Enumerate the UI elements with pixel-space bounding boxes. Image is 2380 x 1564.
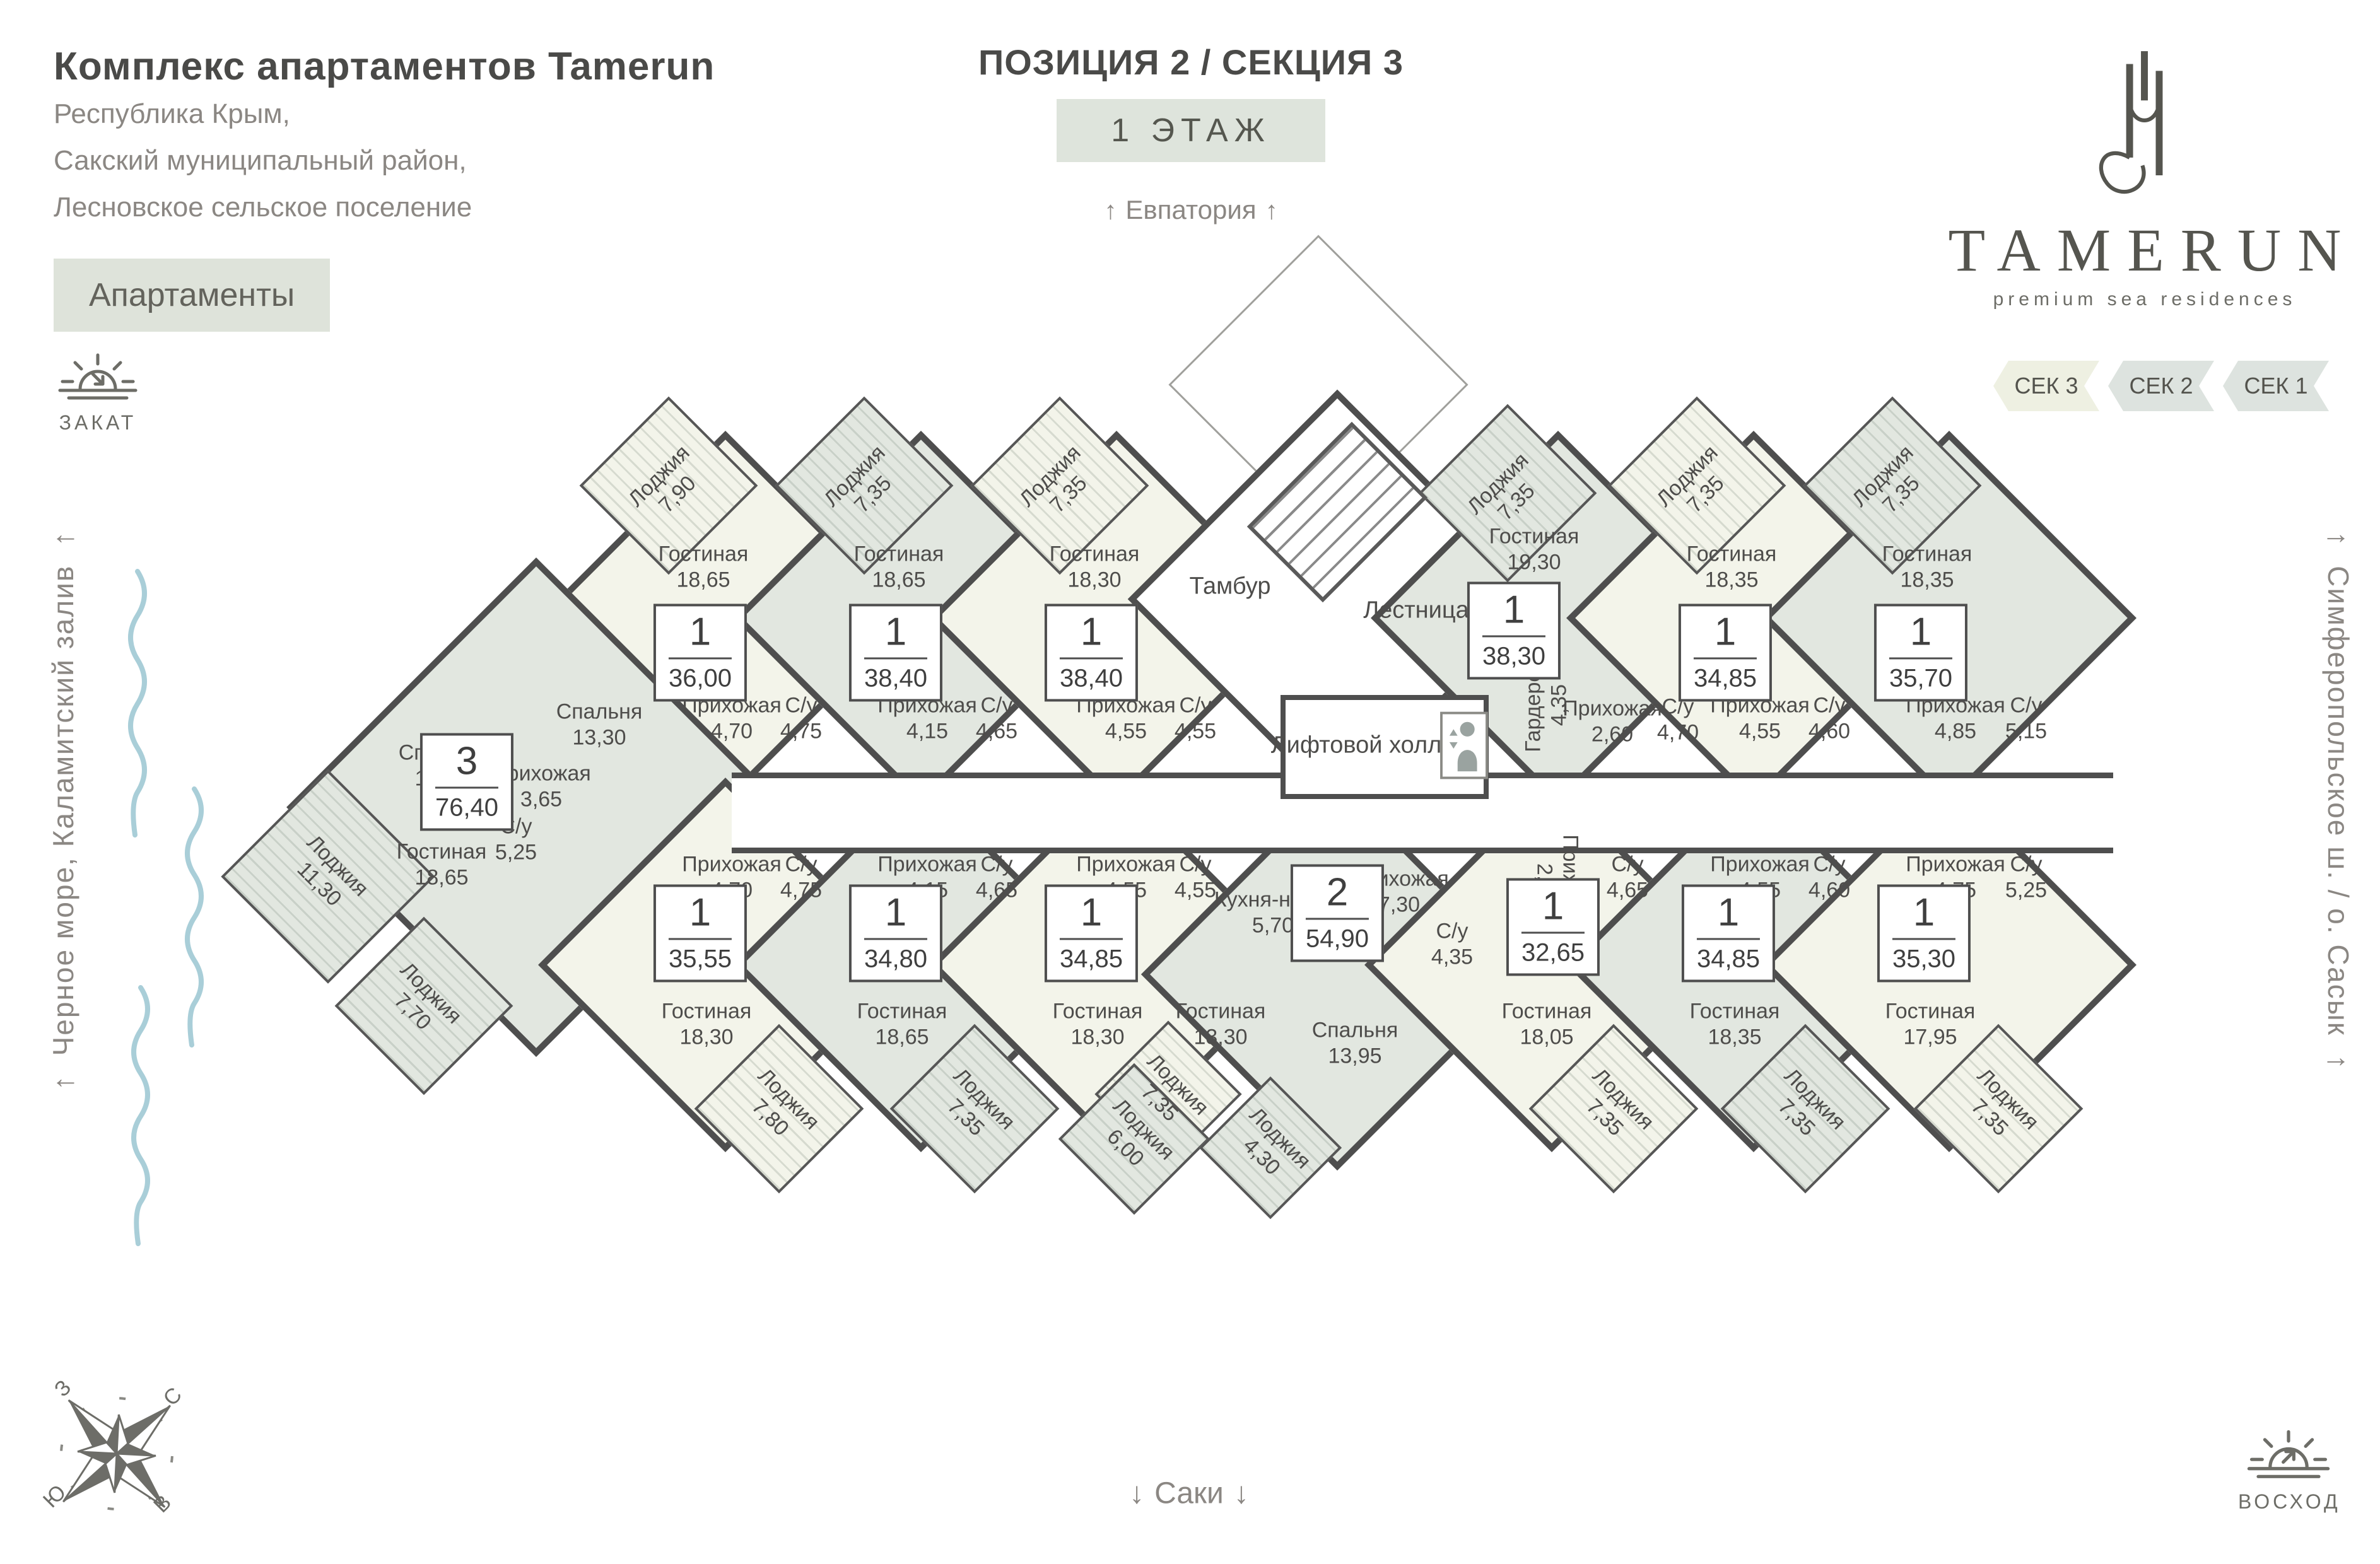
- room-label: Гостиная18,35: [1690, 999, 1780, 1051]
- apartment-card[interactable]: 136,00: [654, 604, 747, 701]
- room-label: Гостиная18,65: [397, 839, 487, 892]
- room-label: Гостиная18,35: [1687, 542, 1777, 594]
- room-label: Гостиная18,65: [659, 542, 749, 594]
- room-label: С/у4,65: [1607, 852, 1648, 904]
- room-label: С/у4,65: [976, 852, 1017, 904]
- room-label: Гостиная18,30: [1050, 542, 1140, 594]
- room-label: Гостиная18,30: [662, 999, 752, 1051]
- room-label: Гостиная18,30: [1053, 999, 1143, 1051]
- room-label: С/у4,35: [1431, 919, 1473, 971]
- common-area-label: Тамбур: [1190, 573, 1271, 600]
- room-label: Гостиная13,30: [1176, 999, 1266, 1051]
- room-label: С/у4,60: [1808, 852, 1850, 904]
- room-label: Спальня13,95: [1312, 1018, 1398, 1070]
- apartment-card[interactable]: 135,30: [1877, 884, 1971, 982]
- common-area-label: Лифтовой холл: [1271, 732, 1442, 759]
- apartment-card[interactable]: 138,40: [1045, 604, 1138, 701]
- room-label: Гостиная19,30: [1489, 524, 1580, 576]
- common-area-label: Лестница: [1363, 597, 1469, 624]
- elevator-icon: [1439, 711, 1489, 779]
- apartment-card[interactable]: 135,55: [654, 884, 747, 982]
- room-label: С/у5,25: [2005, 852, 2047, 904]
- room-label: Гостиная17,95: [1885, 999, 1976, 1051]
- apartment-card[interactable]: 376,40: [420, 733, 513, 831]
- apartment-card[interactable]: 138,30: [1467, 581, 1561, 679]
- room-label: С/у4,75: [780, 852, 822, 904]
- apartment-card[interactable]: 138,40: [849, 604, 942, 701]
- apartment-card[interactable]: 254,90: [1291, 864, 1384, 962]
- floor-plan: Лоджия7,90Гостиная18,65Прихожая4,70С/у4,…: [0, 0, 2380, 1564]
- room-label: С/у4,65: [976, 693, 1017, 745]
- room-label: С/у4,55: [1175, 693, 1216, 745]
- room-label: С/у5,15: [2005, 693, 2047, 745]
- apartment-card[interactable]: 132,65: [1506, 878, 1600, 976]
- apartment-card[interactable]: 134,85: [1679, 604, 1772, 701]
- room-label: Гостиная18,65: [854, 542, 944, 594]
- room-label: С/у4,55: [1175, 852, 1216, 904]
- room-label: Спальня13,30: [556, 699, 643, 752]
- room-label: С/у4,70: [1657, 694, 1699, 747]
- room-label: С/у4,75: [780, 693, 822, 745]
- apartment-card[interactable]: 135,70: [1874, 604, 1967, 701]
- room-label: Гостиная18,35: [1882, 542, 1973, 594]
- apartment-card[interactable]: 134,85: [1045, 884, 1138, 982]
- apartment-card[interactable]: 134,80: [849, 884, 942, 982]
- room-label: Гостиная18,65: [857, 999, 947, 1051]
- apartment-card[interactable]: 134,85: [1682, 884, 1775, 982]
- room-label: Прихожая2,60: [1562, 696, 1662, 749]
- room-label: С/у4,60: [1808, 693, 1850, 745]
- room-label: Гостиная18,05: [1502, 999, 1592, 1051]
